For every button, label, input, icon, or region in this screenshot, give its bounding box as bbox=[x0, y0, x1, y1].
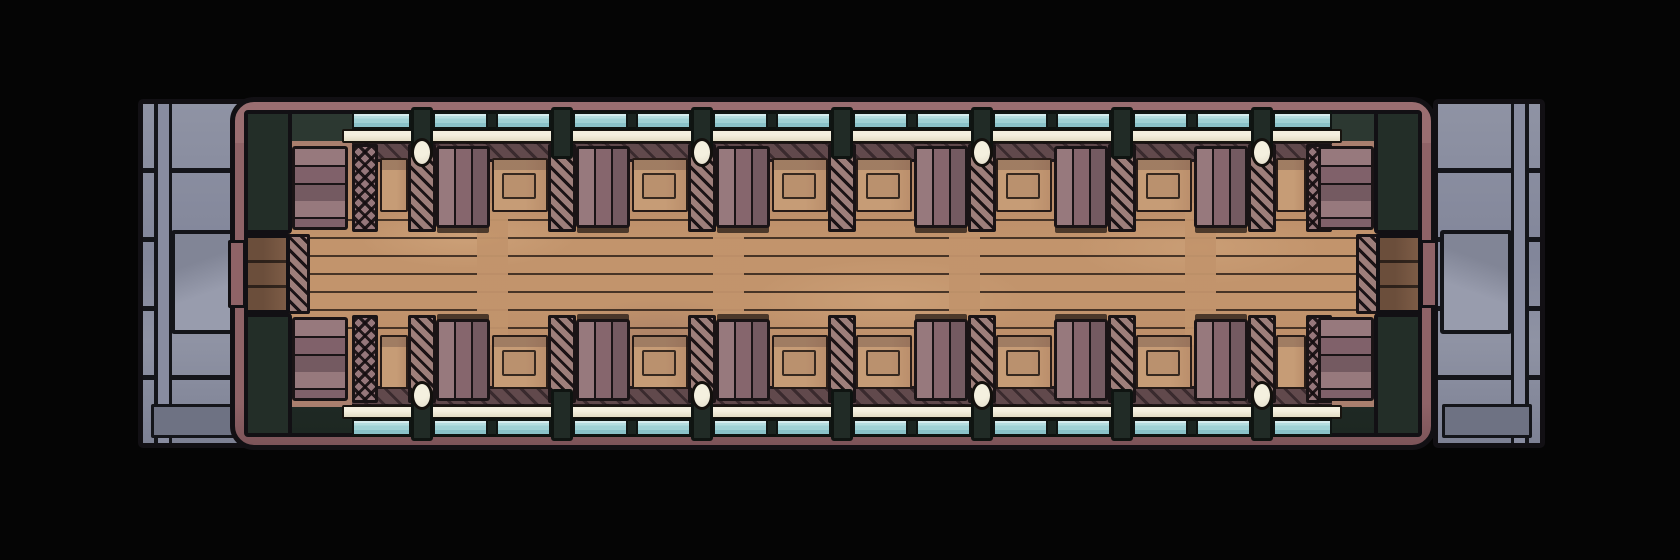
window-pane-bottom-14 bbox=[1273, 419, 1332, 436]
seat-bench-top-2 bbox=[576, 146, 630, 228]
window-pane-top-13 bbox=[1196, 112, 1251, 129]
right-carriage-door bbox=[1376, 234, 1422, 314]
left-carriage-door bbox=[244, 234, 290, 314]
table-sketch-outline bbox=[502, 173, 535, 199]
booth-table-bottom-2 bbox=[632, 335, 688, 389]
table-sketch-outline bbox=[642, 173, 675, 199]
seat-bench-top-4 bbox=[914, 146, 968, 228]
window-pane-top-3 bbox=[496, 112, 551, 129]
wall-lamp-bottom-3 bbox=[971, 381, 993, 410]
table-sketch-outline bbox=[502, 350, 535, 376]
table-sketch-outline bbox=[782, 350, 815, 376]
table-sketch-outline bbox=[1146, 350, 1179, 376]
window-pane-bottom-11 bbox=[1056, 419, 1111, 436]
booth-table-bottom-3 bbox=[772, 335, 828, 389]
window-pane-bottom-8 bbox=[853, 419, 908, 436]
window-pillar-top-6 bbox=[1111, 107, 1133, 159]
end-partition-crosshatch-bottom-left bbox=[352, 315, 378, 403]
window-pane-bottom-2 bbox=[433, 419, 488, 436]
window-pane-bottom-13 bbox=[1196, 419, 1251, 436]
end-bench-bottom-right bbox=[1318, 317, 1374, 401]
booth-table-top-5 bbox=[996, 158, 1052, 212]
right-end-platform bbox=[1433, 99, 1545, 448]
window-pane-top-5 bbox=[636, 112, 691, 129]
window-pane-bottom-1 bbox=[352, 419, 411, 436]
end-bench-bottom-left bbox=[292, 317, 348, 401]
table-sketch-outline bbox=[642, 350, 675, 376]
luggage-rack-bottom-left bbox=[380, 335, 408, 389]
end-bench-top-left bbox=[292, 146, 348, 230]
corner-wall-top-right bbox=[1374, 110, 1422, 234]
window-pane-top-4 bbox=[573, 112, 628, 129]
battlemap-scene bbox=[0, 0, 1680, 560]
wall-lamp-top-1 bbox=[411, 138, 433, 167]
luggage-rack-bottom-right bbox=[1276, 335, 1306, 389]
end-bench-top-right bbox=[1318, 146, 1374, 230]
wall-lamp-top-4 bbox=[1251, 138, 1273, 167]
window-pane-top-9 bbox=[916, 112, 971, 129]
booth-table-top-6 bbox=[1136, 158, 1192, 212]
left-platform-step bbox=[151, 404, 241, 438]
wall-lamp-top-2 bbox=[691, 138, 713, 167]
window-pillar-top-2 bbox=[551, 107, 573, 159]
wall-lamp-bottom-1 bbox=[411, 381, 433, 410]
window-pane-bottom-6 bbox=[713, 419, 768, 436]
window-pillar-top-4 bbox=[831, 107, 853, 159]
window-pane-bottom-5 bbox=[636, 419, 691, 436]
seat-bench-top-3 bbox=[716, 146, 770, 228]
window-pane-top-11 bbox=[1056, 112, 1111, 129]
table-sketch-outline bbox=[866, 173, 899, 199]
window-pane-bottom-12 bbox=[1133, 419, 1188, 436]
luggage-rack-top-left bbox=[380, 158, 408, 212]
table-sketch-outline bbox=[1146, 173, 1179, 199]
seat-bench-bottom-2 bbox=[576, 319, 630, 401]
window-pane-bottom-10 bbox=[993, 419, 1048, 436]
luggage-rack-top-right bbox=[1276, 158, 1306, 212]
window-pane-bottom-7 bbox=[776, 419, 831, 436]
wall-lamp-bottom-2 bbox=[691, 381, 713, 410]
window-pillar-bottom-4 bbox=[831, 389, 853, 441]
right-platform-step bbox=[1442, 404, 1532, 438]
seat-bench-bottom-6 bbox=[1194, 319, 1248, 401]
table-sketch-outline bbox=[1006, 173, 1039, 199]
window-pillar-bottom-6 bbox=[1111, 389, 1133, 441]
seat-bench-bottom-3 bbox=[716, 319, 770, 401]
seat-bench-top-5 bbox=[1054, 146, 1108, 228]
table-sketch-outline bbox=[782, 173, 815, 199]
wall-lamp-top-3 bbox=[971, 138, 993, 167]
seat-bench-top-6 bbox=[1194, 146, 1248, 228]
seat-bench-top-1 bbox=[436, 146, 490, 228]
booth-table-top-4 bbox=[856, 158, 912, 212]
corner-wall-top-left bbox=[244, 110, 292, 234]
right-door-threshold bbox=[1420, 240, 1438, 308]
booth-table-bottom-4 bbox=[856, 335, 912, 389]
wall-lamp-bottom-4 bbox=[1251, 381, 1273, 410]
seat-bench-bottom-1 bbox=[436, 319, 490, 401]
booth-table-top-2 bbox=[632, 158, 688, 212]
window-pane-top-6 bbox=[713, 112, 768, 129]
seat-bench-bottom-4 bbox=[914, 319, 968, 401]
window-pane-top-2 bbox=[433, 112, 488, 129]
window-pane-bottom-3 bbox=[496, 419, 551, 436]
table-sketch-outline bbox=[1006, 350, 1039, 376]
window-pane-top-8 bbox=[853, 112, 908, 129]
right-platform-deck-panel bbox=[1440, 230, 1512, 334]
window-pane-top-10 bbox=[993, 112, 1048, 129]
booth-table-bottom-1 bbox=[492, 335, 548, 389]
window-pane-top-1 bbox=[352, 112, 411, 129]
window-pillar-bottom-2 bbox=[551, 389, 573, 441]
window-pane-bottom-9 bbox=[916, 419, 971, 436]
table-sketch-outline bbox=[866, 350, 899, 376]
window-pane-top-7 bbox=[776, 112, 831, 129]
booth-table-top-1 bbox=[492, 158, 548, 212]
booth-table-bottom-5 bbox=[996, 335, 1052, 389]
booth-table-bottom-6 bbox=[1136, 335, 1192, 389]
corner-wall-bottom-left bbox=[244, 313, 292, 437]
window-pane-bottom-4 bbox=[573, 419, 628, 436]
end-partition-crosshatch-top-left bbox=[352, 144, 378, 232]
window-pane-top-12 bbox=[1133, 112, 1188, 129]
window-pane-top-14 bbox=[1273, 112, 1332, 129]
seat-bench-bottom-5 bbox=[1054, 319, 1108, 401]
corner-wall-bottom-right bbox=[1374, 313, 1422, 437]
booth-table-top-3 bbox=[772, 158, 828, 212]
